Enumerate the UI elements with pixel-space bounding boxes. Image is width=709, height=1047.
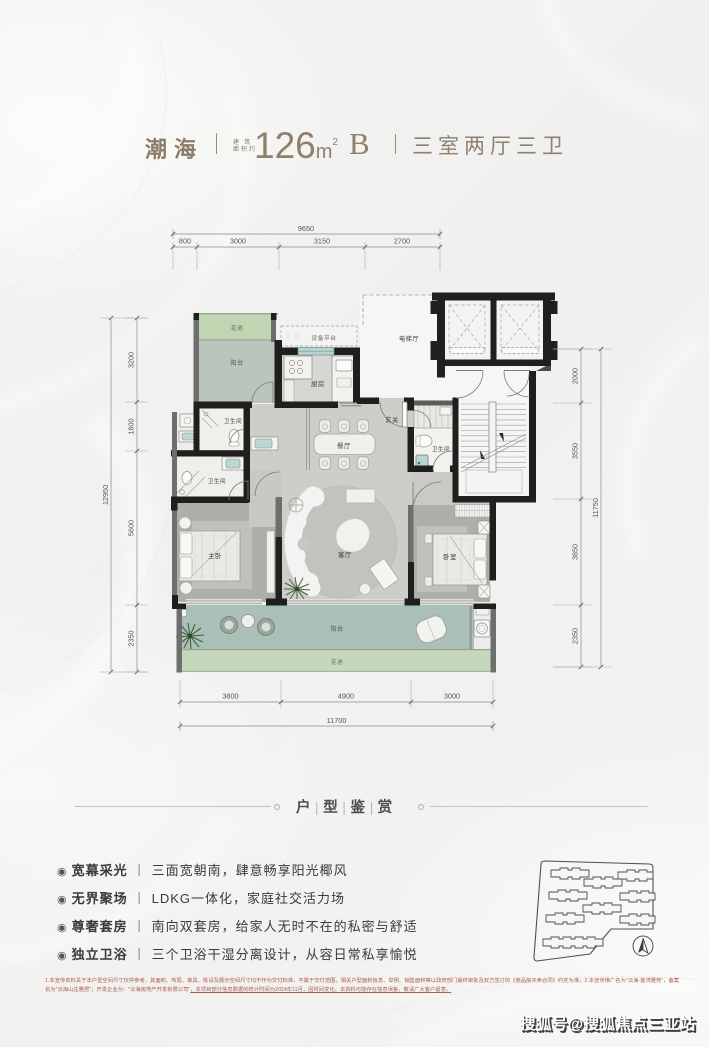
svg-text:客厅: 客厅 xyxy=(338,550,352,559)
svg-text:厨房: 厨房 xyxy=(311,379,325,388)
svg-text:阳台: 阳台 xyxy=(230,359,243,367)
svg-text:主卧: 主卧 xyxy=(208,551,222,560)
svg-text:4900: 4900 xyxy=(338,692,354,701)
svg-text:电梯厅: 电梯厅 xyxy=(399,335,419,343)
svg-text:3850: 3850 xyxy=(571,544,580,560)
svg-text:12950: 12950 xyxy=(101,485,110,505)
svg-text:1800: 1800 xyxy=(127,418,136,434)
svg-text:花池: 花池 xyxy=(331,658,343,666)
svg-text:卫生间: 卫生间 xyxy=(432,445,450,453)
svg-text:2000: 2000 xyxy=(571,368,580,384)
svg-text:3000: 3000 xyxy=(444,692,460,701)
svg-text:餐厅: 餐厅 xyxy=(337,441,351,450)
svg-text:设备平台: 设备平台 xyxy=(311,334,336,342)
svg-text:阳台: 阳台 xyxy=(330,625,343,633)
svg-text:卧室: 卧室 xyxy=(443,552,457,561)
svg-text:3200: 3200 xyxy=(127,352,136,368)
svg-text:800: 800 xyxy=(179,237,191,246)
svg-text:卫生间: 卫生间 xyxy=(224,417,242,425)
svg-text:2350: 2350 xyxy=(571,628,580,644)
svg-text:卫生间: 卫生间 xyxy=(208,477,226,485)
svg-text:3550: 3550 xyxy=(571,443,580,459)
svg-text:2350: 2350 xyxy=(127,630,136,646)
svg-text:3000: 3000 xyxy=(230,237,246,246)
svg-text:2700: 2700 xyxy=(394,237,410,246)
svg-text:5600: 5600 xyxy=(127,520,136,536)
svg-text:11750: 11750 xyxy=(591,498,600,518)
svg-text:3800: 3800 xyxy=(222,692,238,701)
svg-text:玄关: 玄关 xyxy=(385,415,399,424)
svg-text:11700: 11700 xyxy=(327,716,347,725)
svg-text:3150: 3150 xyxy=(314,237,330,246)
svg-text:9650: 9650 xyxy=(298,224,314,233)
svg-text:花池: 花池 xyxy=(231,324,244,332)
